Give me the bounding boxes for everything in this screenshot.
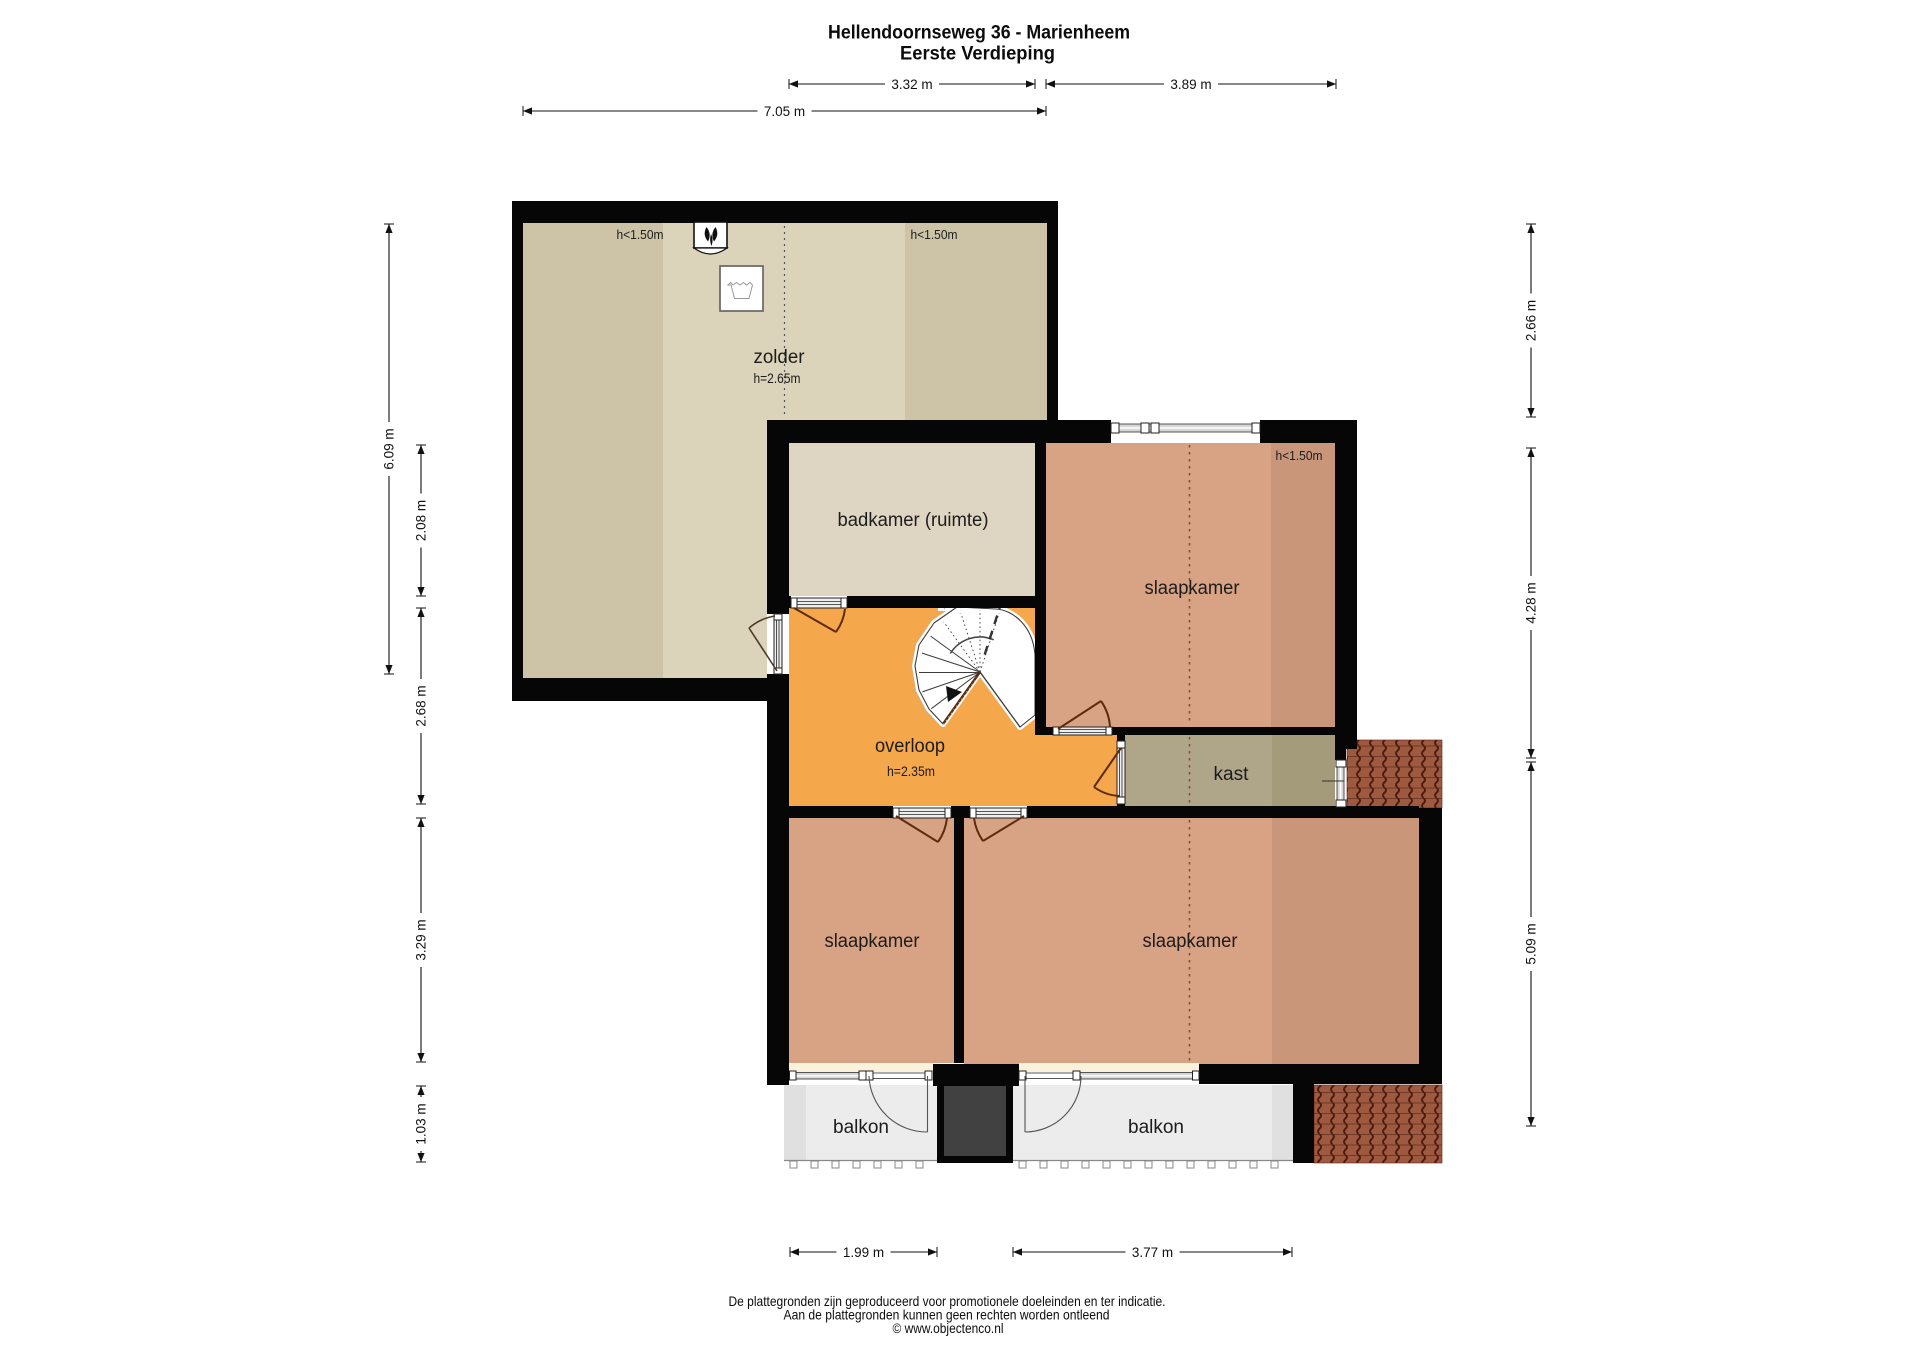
svg-text:3.32 m: 3.32 m — [891, 77, 932, 92]
svg-text:h<1.50m: h<1.50m — [617, 227, 664, 242]
svg-text:5.09 m: 5.09 m — [1524, 923, 1539, 964]
svg-text:4.28 m: 4.28 m — [1524, 582, 1539, 623]
svg-text:slaapkamer: slaapkamer — [1145, 578, 1241, 599]
svg-text:h=2.65m: h=2.65m — [754, 371, 801, 386]
svg-text:2.08 m: 2.08 m — [414, 500, 429, 541]
svg-text:3.89 m: 3.89 m — [1170, 77, 1211, 92]
svg-text:zolder: zolder — [754, 347, 806, 368]
svg-text:1.99 m: 1.99 m — [843, 1245, 884, 1260]
svg-text:© www.objectenco.nl: © www.objectenco.nl — [893, 1320, 1004, 1336]
svg-text:1.03 m: 1.03 m — [414, 1103, 429, 1144]
svg-text:kast: kast — [1214, 764, 1250, 785]
svg-text:Eerste Verdieping: Eerste Verdieping — [900, 43, 1055, 65]
svg-text:2.66 m: 2.66 m — [1524, 300, 1539, 341]
svg-text:overloop: overloop — [875, 736, 945, 757]
svg-text:3.77 m: 3.77 m — [1132, 1245, 1173, 1260]
svg-text:2.68 m: 2.68 m — [414, 685, 429, 726]
svg-text:badkamer (ruimte): badkamer (ruimte) — [838, 510, 989, 531]
svg-text:7.05 m: 7.05 m — [764, 104, 805, 119]
svg-text:3.29 m: 3.29 m — [414, 919, 429, 960]
svg-text:balkon: balkon — [1128, 1117, 1184, 1138]
svg-text:Hellendoornseweg 36 - Marienhe: Hellendoornseweg 36 - Marienheem — [828, 22, 1130, 44]
svg-text:h=2.35m: h=2.35m — [887, 764, 935, 779]
svg-text:balkon: balkon — [833, 1117, 889, 1138]
svg-text:6.09 m: 6.09 m — [382, 428, 397, 469]
svg-text:h<1.50m: h<1.50m — [911, 227, 958, 242]
svg-text:slaapkamer: slaapkamer — [1143, 931, 1239, 952]
svg-text:h<1.50m: h<1.50m — [1276, 448, 1323, 463]
svg-text:slaapkamer: slaapkamer — [825, 931, 921, 952]
